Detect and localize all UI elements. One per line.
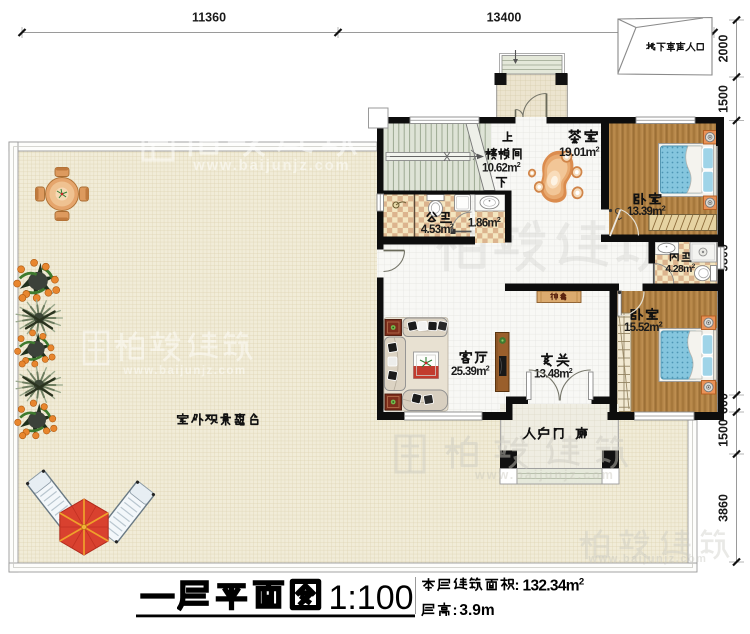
svg-text:1.86m2: 1.86m2 [468, 216, 501, 229]
svg-text:10.62m2: 10.62m2 [482, 161, 521, 174]
svg-text:1:100: 1:100 [328, 579, 413, 617]
svg-text:www.baijunjz.com: www.baijunjz.com [192, 158, 350, 174]
svg-text:3.9m: 3.9m [459, 602, 494, 619]
svg-text:3860: 3860 [717, 494, 731, 522]
svg-text:13400: 13400 [487, 11, 522, 25]
svg-text:www.baijunjz.com: www.baijunjz.com [122, 365, 246, 377]
svg-text:13.39m2: 13.39m2 [627, 205, 666, 218]
svg-text:2000: 2000 [717, 35, 731, 63]
svg-text:132.34m2: 132.34m2 [523, 577, 584, 595]
svg-text:11360: 11360 [192, 11, 226, 25]
svg-text:www.baijunjz.com: www.baijunjz.com [588, 553, 708, 565]
svg-text:15.52m2: 15.52m2 [624, 321, 663, 334]
svg-text:www.baijunjz.com: www.baijunjz.com [474, 468, 615, 482]
svg-text:4.53m2: 4.53m2 [421, 223, 454, 236]
svg-text::: : [453, 602, 458, 619]
svg-text:4.28m2: 4.28m2 [665, 263, 695, 275]
svg-text:13.48m2: 13.48m2 [534, 367, 573, 380]
svg-text:25.39m2: 25.39m2 [451, 365, 490, 378]
svg-text::: : [515, 577, 520, 594]
svg-text:1500: 1500 [717, 419, 731, 447]
svg-text:1500: 1500 [717, 85, 731, 113]
svg-text:19.01m2: 19.01m2 [559, 144, 600, 159]
